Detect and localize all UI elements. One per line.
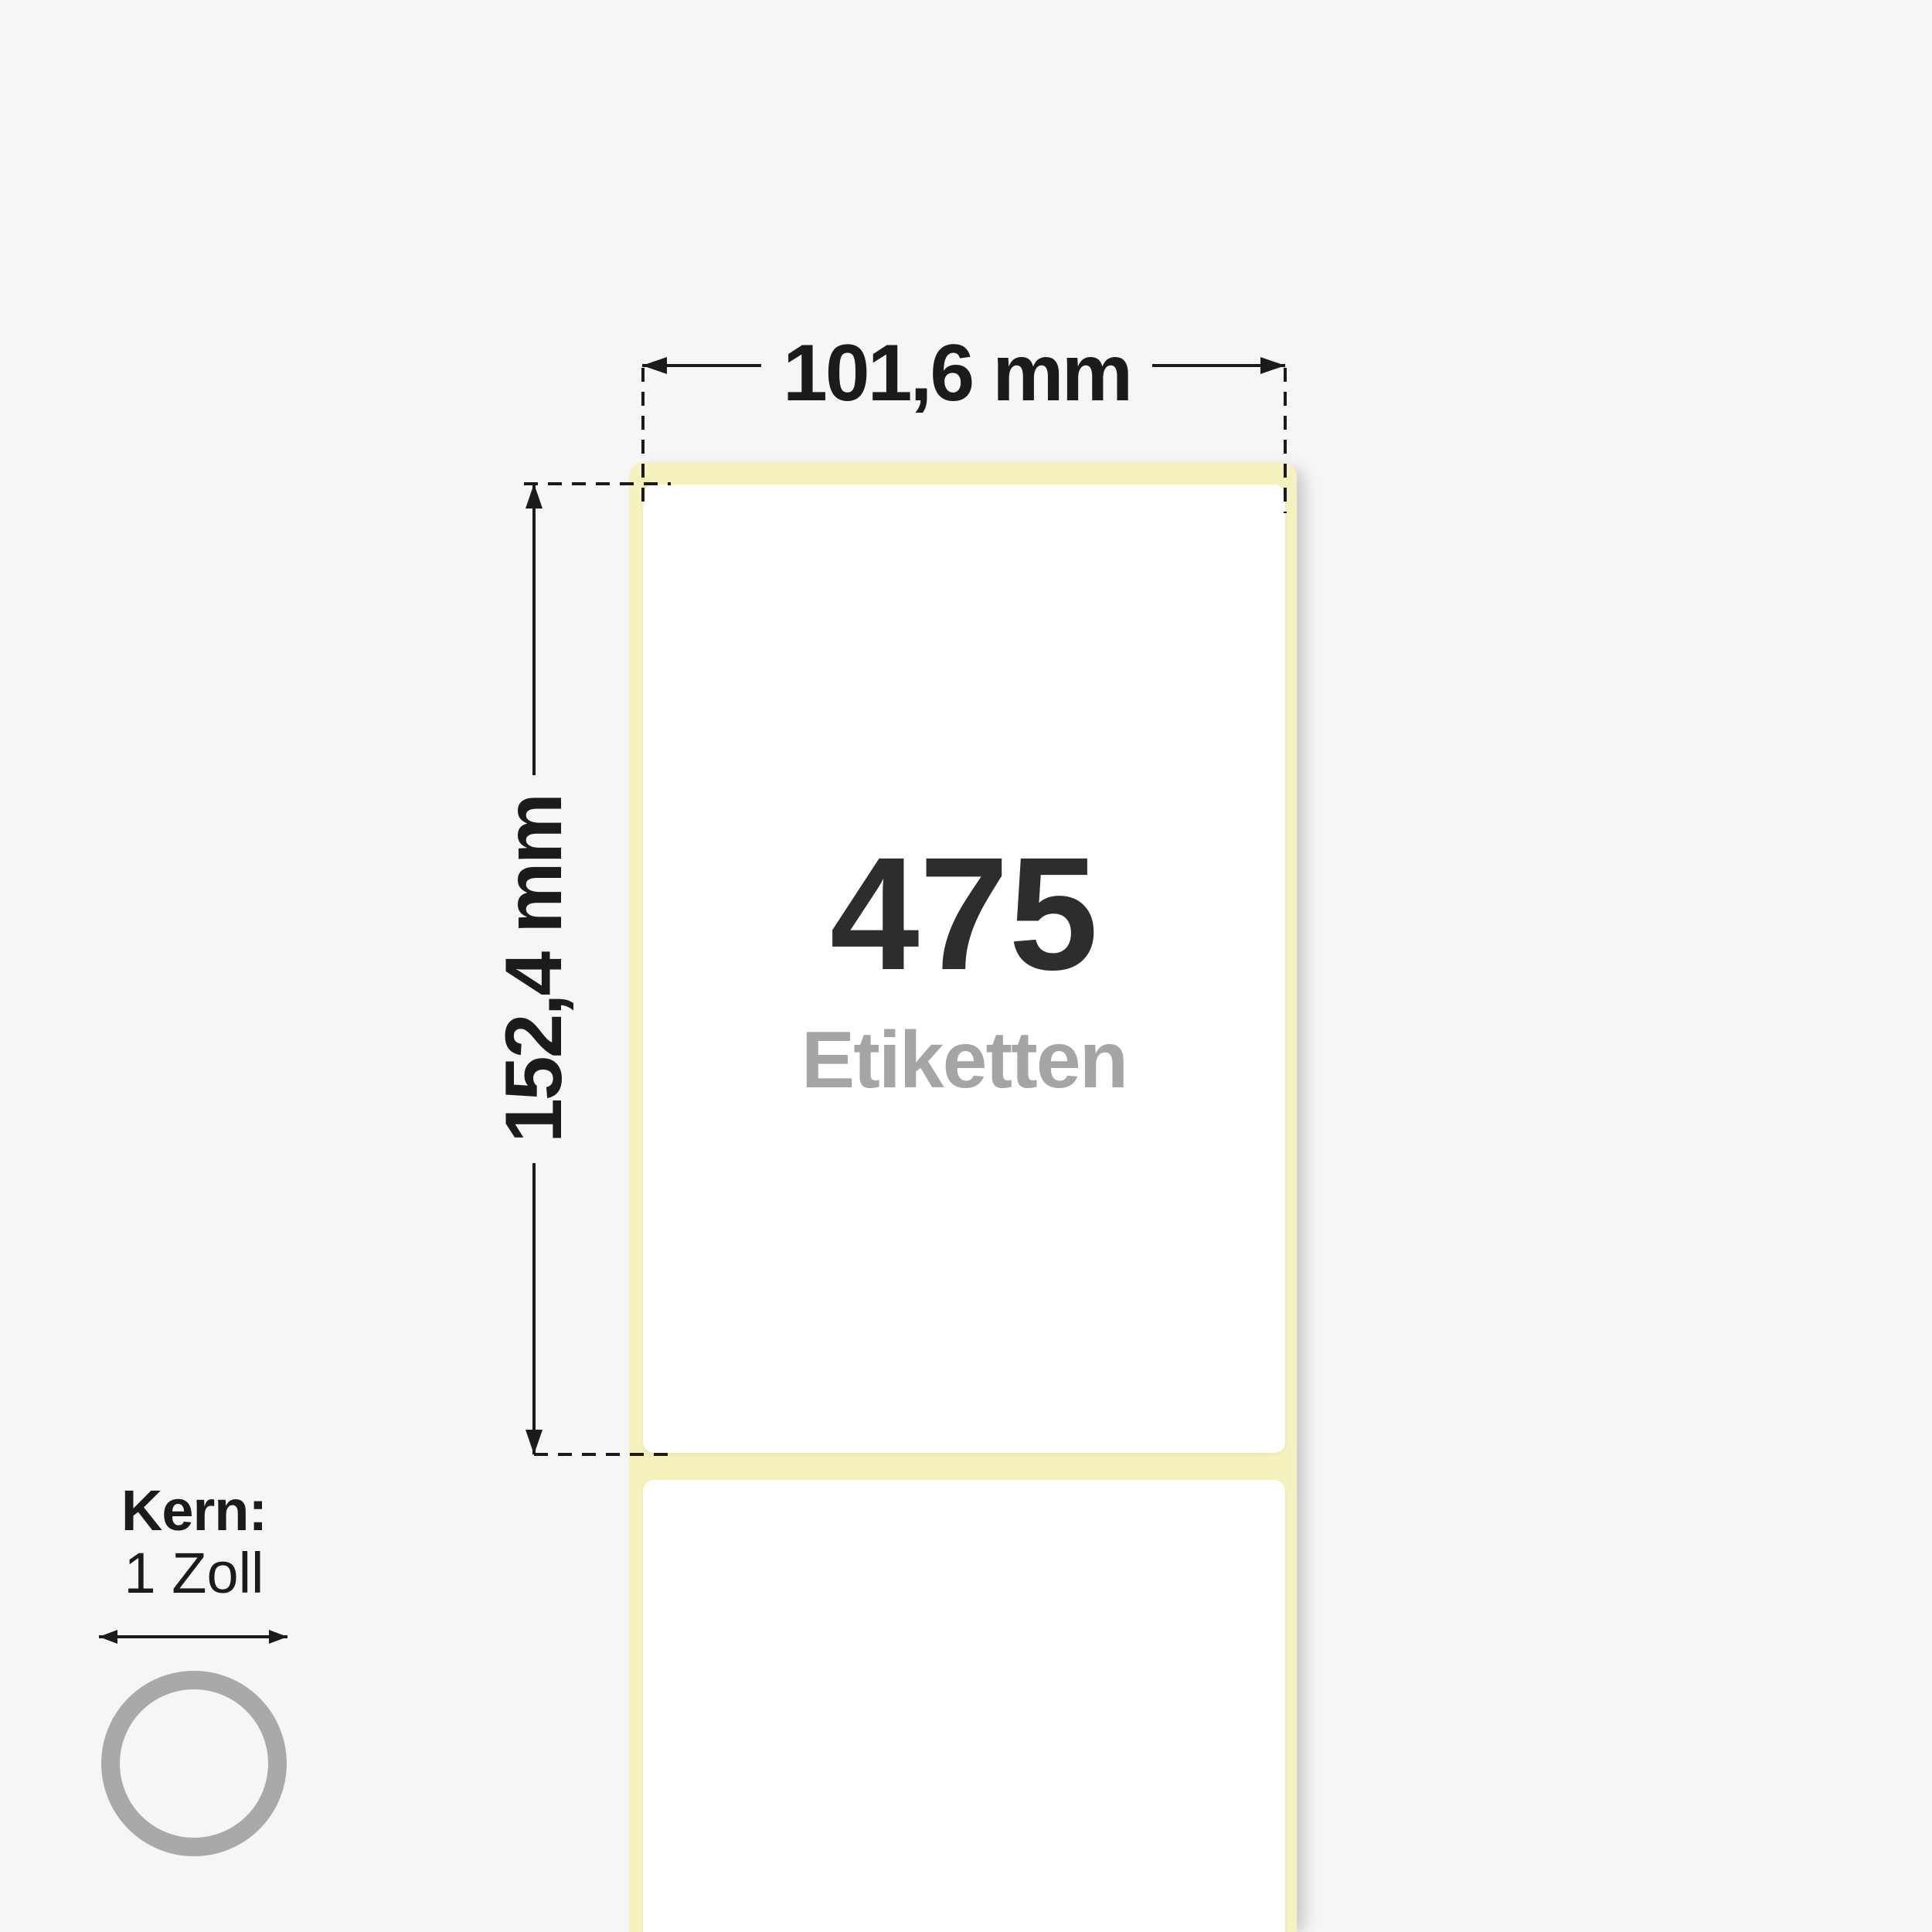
label-count-unit: Etiketten bbox=[801, 1020, 1127, 1100]
core-arrowhead-right-icon bbox=[269, 1630, 287, 1644]
label-count: 475 bbox=[830, 834, 1098, 995]
arrowhead-left-icon bbox=[642, 357, 667, 374]
arrowhead-up-icon bbox=[526, 484, 543, 509]
core-arrowhead-left-icon bbox=[99, 1630, 117, 1644]
arrowhead-right-icon bbox=[1260, 357, 1285, 374]
core-diameter-line bbox=[99, 1635, 287, 1638]
extension-line-left bbox=[641, 368, 645, 509]
label-next bbox=[643, 1480, 1285, 1932]
height-dimension-value: 152,4 mm bbox=[494, 775, 574, 1163]
core-size: 1 Zoll bbox=[124, 1545, 264, 1602]
core-label: Kern: bbox=[121, 1482, 267, 1539]
core-ring-icon bbox=[94, 1663, 294, 1864]
arrowhead-down-icon bbox=[526, 1430, 543, 1454]
extension-line-bottom bbox=[534, 1453, 670, 1456]
extension-line-top bbox=[524, 482, 671, 485]
extension-line-right bbox=[1284, 368, 1287, 513]
label-front: 475 Etiketten bbox=[643, 485, 1285, 1453]
width-dimension-value: 101,6 mm bbox=[761, 333, 1152, 413]
label-roll-diagram: 475 Etiketten 101,6 mm 152,4 mm Kern: 1 … bbox=[0, 0, 1932, 1932]
